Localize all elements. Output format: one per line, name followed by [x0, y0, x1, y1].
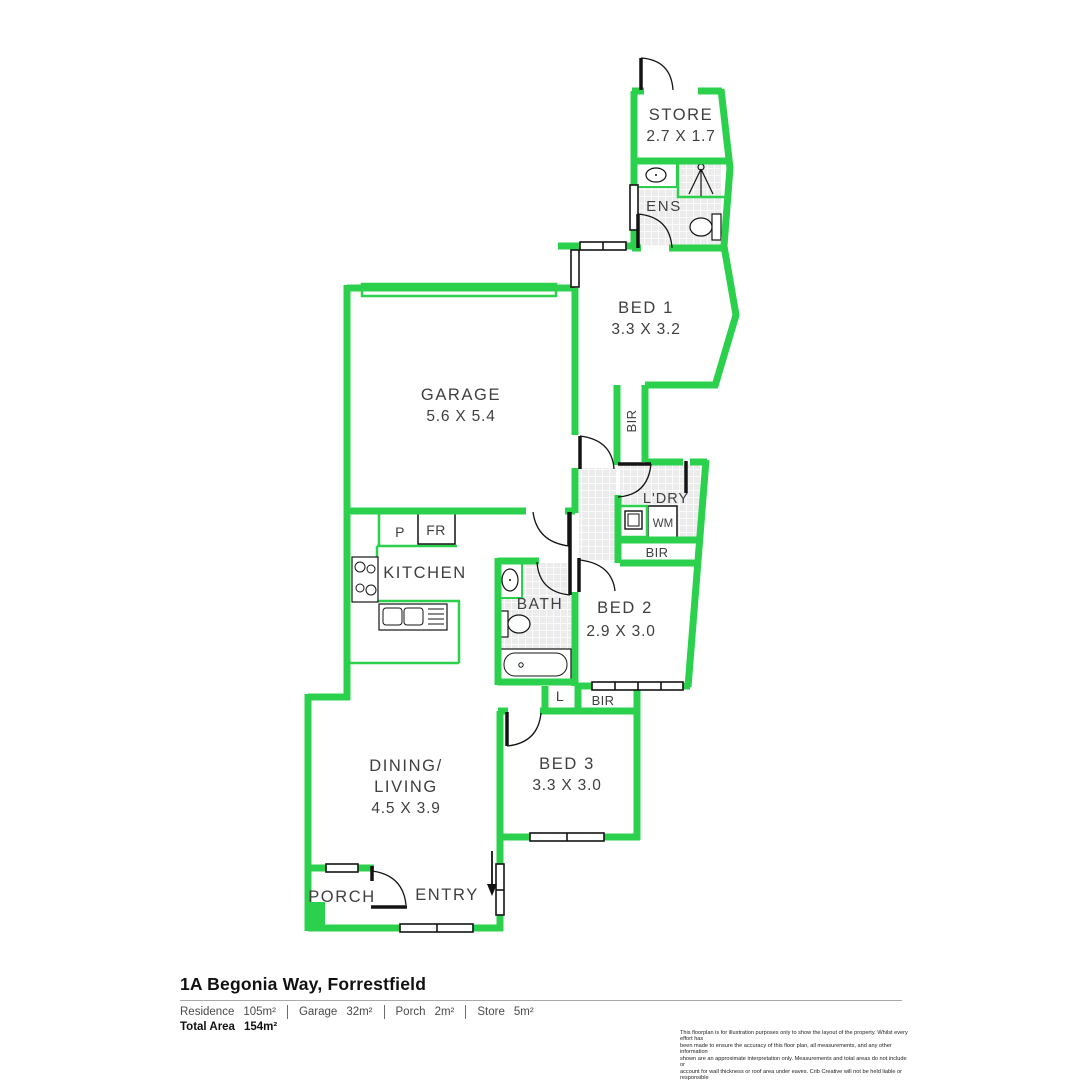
- entry-label: ENTRY: [415, 886, 479, 904]
- bath-basin-drain: [509, 579, 511, 581]
- disclaimer-line: been made to ensure the accuracy of this…: [680, 1043, 912, 1056]
- ens-basin-drain: [655, 174, 657, 176]
- disclaimer-line: shown are an approximate interpretation …: [680, 1056, 912, 1069]
- bed3-door-arc: [507, 713, 541, 746]
- bed3-bir-label: BIR: [592, 693, 615, 708]
- area-label: Garage: [299, 1006, 337, 1018]
- linen-label: L: [556, 688, 564, 704]
- hall-floor: [579, 468, 616, 560]
- disclaimer-line: account for wall thickness or roof area …: [680, 1069, 912, 1080]
- area-value: 32m²: [346, 1006, 372, 1018]
- kitchen-label: KITCHEN: [383, 564, 467, 582]
- cooktop-icon: [352, 557, 378, 602]
- dining-label-line1: DINING/: [369, 757, 443, 775]
- bed2-label: BED 2: [597, 599, 653, 617]
- entry-side-window: [496, 864, 504, 915]
- total-area-label: Total Area: [180, 1021, 235, 1033]
- area-label: Porch: [396, 1006, 426, 1018]
- laundry-label: L'DRY: [643, 491, 689, 507]
- total-area: Total Area154m²: [180, 1021, 277, 1033]
- title-divider: [180, 1000, 902, 1001]
- washing-machine-label: WM: [653, 518, 673, 530]
- bed1-bir-label: BIR: [624, 410, 639, 433]
- area-label: Residence: [180, 1006, 234, 1018]
- floorplan-drawing: STORE 2.7 X 1.7 ENS BED 1 3.3 X 3.2 GARA…: [0, 0, 1080, 1080]
- store-dims: 2.7 X 1.7: [646, 128, 715, 145]
- fridge-label: FR: [426, 522, 445, 538]
- sink-icon: [379, 604, 447, 630]
- area-value: 2m²: [435, 1006, 455, 1018]
- bed2-dims: 2.9 X 3.0: [586, 623, 655, 640]
- dining-dims: 4.5 X 3.9: [371, 800, 440, 817]
- total-area-value: 154m²: [244, 1021, 277, 1033]
- porch-pier: [306, 902, 325, 929]
- hall-door-arc: [580, 436, 614, 469]
- bed2-bottom-window: [592, 682, 683, 690]
- dining-label-line2: LIVING: [374, 778, 438, 796]
- garage-dims: 5.6 X 5.4: [426, 408, 495, 425]
- bed2-bir-label: BIR: [646, 545, 669, 560]
- entry-bottom-window: [400, 924, 473, 932]
- bed1-dims: 3.3 X 3.2: [611, 321, 680, 338]
- front-door-arc: [372, 871, 406, 905]
- bed3-window: [530, 833, 604, 841]
- store-label: STORE: [649, 106, 714, 124]
- bed2-door-arc: [580, 560, 615, 591]
- bath-label: BATH: [517, 596, 564, 613]
- porch-label: PORCH: [308, 888, 376, 906]
- area-separator: [465, 1005, 466, 1019]
- bed3-label: BED 3: [539, 755, 595, 773]
- garage-label: GARAGE: [421, 386, 501, 404]
- page-title: 1A Begonia Way, Forrestfield: [180, 974, 426, 995]
- pantry-label: P: [395, 524, 405, 540]
- bed1-label: BED 1: [618, 299, 674, 317]
- area-label: Store: [477, 1006, 505, 1018]
- laundry-trough-icon: [620, 506, 647, 537]
- ens-label: ENS: [646, 198, 682, 215]
- bed1-left-window: [571, 250, 579, 287]
- area-separator: [287, 1005, 288, 1019]
- area-separator: [384, 1005, 385, 1019]
- bed3-dims: 3.3 X 3.0: [532, 777, 601, 794]
- bed1-top-window: [580, 242, 626, 250]
- garage-door-arc: [533, 512, 569, 546]
- disclaimer-line: This floorplan is for illustration purpo…: [680, 1030, 912, 1043]
- area-value: 5m²: [514, 1006, 534, 1018]
- bathtub-icon: [500, 649, 571, 680]
- floorplan-page: STORE 2.7 X 1.7 ENS BED 1 3.3 X 3.2 GARA…: [0, 0, 1080, 1080]
- area-summary: Residence 105m² Garage 32m² Porch 2m² St…: [180, 1005, 534, 1019]
- disclaimer-text: This floorplan is for illustration purpo…: [680, 1030, 912, 1080]
- porch-window: [326, 864, 358, 872]
- area-value: 105m²: [243, 1006, 276, 1018]
- store-door-arc: [641, 58, 673, 90]
